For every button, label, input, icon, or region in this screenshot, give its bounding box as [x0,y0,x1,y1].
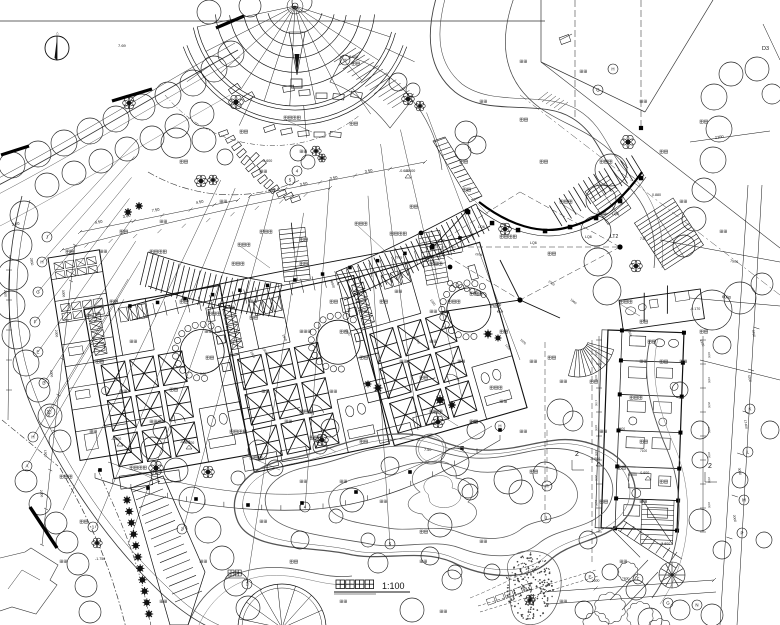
svg-text:-2.800: -2.800 [660,542,670,546]
svg-text:-0.600: -0.600 [184,441,194,445]
svg-text:J: J [46,235,48,240]
svg-text:1700: 1700 [594,400,599,407]
svg-text:2: 2 [575,451,579,458]
svg-text:2: 2 [708,463,712,470]
svg-text:0.900: 0.900 [490,305,499,309]
svg-text:G: G [596,88,600,93]
svg-text:-0.170: -0.170 [690,307,700,311]
svg-text:1800: 1800 [594,425,599,432]
svg-text:7100: 7100 [640,449,647,453]
svg-text:-0.450: -0.450 [596,211,606,215]
svg-text:6000: 6000 [722,294,732,300]
svg-text:0.900: 0.900 [225,305,234,309]
svg-text:3700: 3700 [668,572,676,577]
svg-text:2300: 2300 [707,477,712,484]
svg-text:-1.756: -1.756 [95,557,105,561]
svg-text:-0.600: -0.600 [405,169,415,173]
svg-text:6.00: 6.00 [200,372,206,376]
svg-text:-0.600: -0.600 [348,55,358,59]
svg-text:2000: 2000 [707,402,712,409]
svg-text:1:100: 1:100 [382,581,405,591]
svg-text:0.900: 0.900 [628,473,637,477]
svg-text:1600: 1600 [594,375,599,382]
svg-text:1900: 1900 [707,377,712,384]
svg-text:H: H [343,58,346,63]
svg-text:2000: 2000 [594,475,599,482]
svg-text:LT2: LT2 [610,234,618,240]
svg-text:2200: 2200 [707,452,712,459]
svg-text:7.50: 7.50 [640,237,646,241]
svg-text:2000: 2000 [592,578,600,583]
svg-text:-0.600: -0.600 [111,437,121,441]
svg-text:1800: 1800 [707,352,712,359]
svg-text:2000: 2000 [3,290,8,298]
svg-text:G: G [36,290,40,295]
svg-text:7.50: 7.50 [424,448,431,452]
svg-text:1500: 1500 [594,350,599,357]
svg-text:N: N [695,603,698,608]
svg-text:7600: 7600 [622,576,630,581]
svg-text:H: H [498,424,501,429]
svg-text:LQ6: LQ6 [478,225,485,229]
svg-text:LQ6: LQ6 [530,241,537,245]
svg-text:H: H [40,260,43,265]
svg-text:H: H [611,67,614,72]
svg-text:2400: 2400 [707,502,712,509]
svg-text:2100: 2100 [594,500,599,507]
svg-text:D3: D3 [762,46,769,52]
svg-text:G: G [666,601,670,606]
svg-text:2400: 2400 [618,427,625,431]
svg-text:2100: 2100 [707,427,712,434]
svg-text:0.880: 0.880 [652,193,661,197]
svg-text:-0.600: -0.600 [262,159,272,163]
svg-text:7.69: 7.69 [118,43,127,48]
svg-text:LQ6: LQ6 [585,235,592,239]
svg-text:1900: 1900 [594,450,599,457]
